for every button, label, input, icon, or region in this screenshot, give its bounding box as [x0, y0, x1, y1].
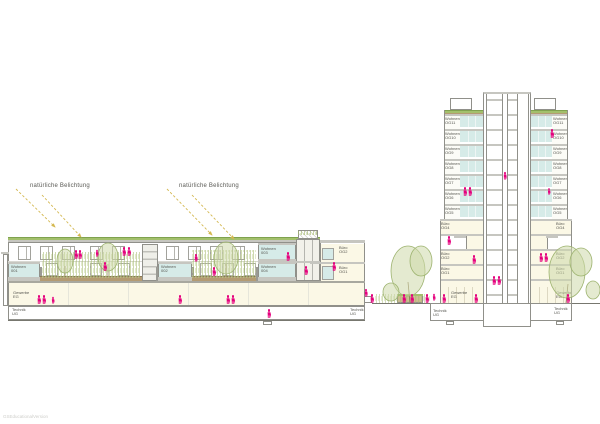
figure-body	[474, 297, 478, 303]
figure-head	[426, 294, 429, 297]
figure-head	[52, 297, 54, 299]
person-figure	[304, 266, 308, 275]
person-figure	[548, 188, 551, 195]
figure-head	[232, 295, 235, 298]
figure-body	[402, 297, 406, 303]
person-figure	[178, 295, 182, 304]
figure-head	[567, 294, 570, 297]
figure-body	[42, 298, 46, 304]
figure-head	[104, 262, 107, 265]
figure-body	[442, 297, 446, 303]
annotation-natural-light-2: natürliche Belichtung	[179, 183, 239, 189]
person-figure	[402, 294, 406, 303]
figure-head	[371, 294, 374, 297]
figure-head	[464, 187, 467, 190]
person-figure	[42, 295, 46, 304]
figure-head	[213, 267, 216, 270]
person-figure	[425, 294, 429, 303]
person-figure	[463, 187, 467, 196]
person-figure	[212, 267, 216, 276]
figure-body	[364, 292, 368, 297]
figure-body	[410, 297, 414, 303]
figure-head	[551, 129, 554, 132]
person-figure	[447, 236, 451, 245]
person-figure	[194, 254, 198, 262]
person-figure	[267, 309, 271, 318]
person-figure	[103, 262, 107, 271]
person-figure	[231, 295, 235, 304]
figure-body	[286, 255, 290, 261]
figure-body	[497, 279, 501, 285]
figure-head	[75, 250, 78, 253]
figure-body	[432, 296, 435, 301]
person-figure	[468, 187, 472, 196]
person-figure	[410, 294, 414, 303]
person-figure	[497, 276, 501, 285]
figure-head	[498, 276, 501, 279]
people-layer	[0, 0, 600, 424]
person-figure	[226, 295, 230, 304]
figure-body	[492, 279, 496, 285]
figure-body	[95, 252, 98, 257]
person-figure	[51, 297, 54, 304]
figure-head	[548, 188, 550, 190]
figure-head	[448, 236, 451, 239]
figure-body	[463, 190, 467, 196]
figure-head	[365, 289, 367, 291]
figure-head	[403, 294, 406, 297]
figure-body	[544, 256, 548, 262]
figure-head	[79, 250, 82, 253]
person-figure	[474, 294, 478, 303]
figure-body	[425, 297, 429, 303]
person-figure	[472, 255, 476, 264]
person-figure	[78, 250, 82, 259]
figure-head	[96, 250, 98, 252]
figure-head	[43, 295, 46, 298]
figure-head	[475, 294, 478, 297]
figure-body	[332, 265, 336, 271]
person-figure	[37, 295, 41, 304]
figure-head	[268, 309, 271, 312]
figure-body	[212, 270, 216, 276]
figure-body	[267, 312, 271, 318]
figure-body	[231, 298, 235, 304]
figure-body	[194, 257, 198, 262]
figure-body	[304, 269, 308, 275]
person-figure	[122, 247, 126, 256]
figure-head	[411, 294, 414, 297]
figure-body	[550, 132, 554, 138]
figure-body	[178, 298, 182, 304]
person-figure	[332, 262, 336, 271]
annotation-natural-light-1: natürliche Belichtung	[30, 183, 90, 189]
figure-head	[469, 187, 472, 190]
figure-head	[123, 247, 126, 250]
watermark: GSEducationalVersion	[3, 414, 48, 419]
figure-head	[493, 276, 496, 279]
person-figure	[492, 276, 496, 285]
person-figure	[550, 129, 554, 138]
figure-body	[37, 298, 41, 304]
figure-head	[128, 247, 131, 250]
person-figure	[127, 247, 131, 256]
figure-body	[51, 299, 54, 304]
figure-head	[433, 294, 435, 296]
figure-body	[548, 191, 551, 195]
person-figure	[503, 172, 507, 180]
person-figure	[95, 250, 98, 257]
figure-body	[447, 239, 451, 245]
figure-body	[468, 190, 472, 196]
figure-body	[78, 253, 82, 259]
figure-head	[473, 255, 476, 258]
figure-body	[103, 265, 107, 271]
figure-body	[472, 258, 476, 264]
person-figure	[442, 294, 446, 303]
figure-body	[566, 297, 570, 303]
figure-body	[122, 250, 126, 256]
figure-head	[179, 295, 182, 298]
person-figure	[432, 294, 435, 301]
figure-body	[539, 256, 543, 262]
figure-body	[127, 250, 131, 256]
architectural-section-drawing: Wohnen001Wohnen002Wohnen003Wohnen004Büro…	[0, 0, 600, 424]
figure-head	[504, 172, 506, 174]
figure-head	[38, 295, 41, 298]
figure-head	[195, 254, 197, 256]
figure-head	[443, 294, 446, 297]
figure-head	[540, 253, 543, 256]
figure-head	[545, 253, 548, 256]
figure-body	[226, 298, 230, 304]
person-figure	[370, 294, 374, 303]
person-figure	[566, 294, 570, 303]
figure-head	[333, 262, 336, 265]
figure-head	[287, 252, 290, 255]
person-figure	[286, 252, 290, 261]
figure-head	[227, 295, 230, 298]
person-figure	[539, 253, 543, 262]
figure-body	[370, 297, 374, 303]
person-figure	[364, 289, 368, 297]
figure-head	[305, 266, 308, 269]
figure-body	[503, 175, 507, 180]
person-figure	[544, 253, 548, 262]
